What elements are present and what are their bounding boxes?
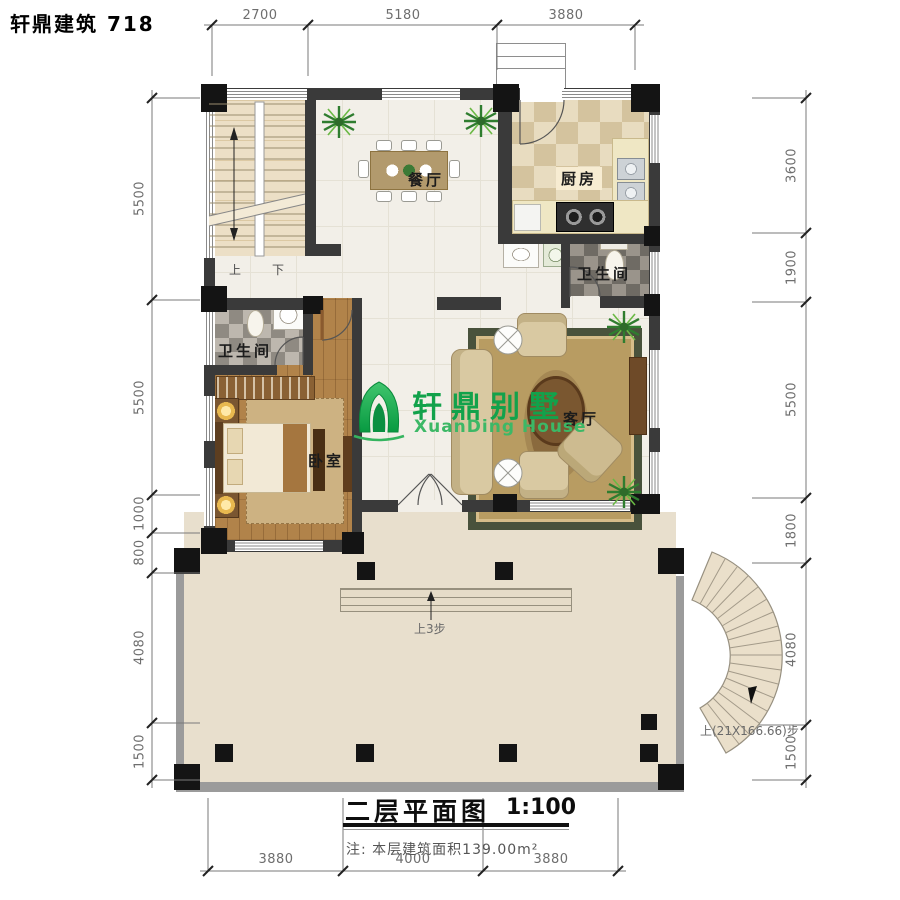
window [235, 541, 323, 551]
terrace-wall-bottom [176, 782, 684, 792]
dining-chair [401, 140, 417, 151]
column [342, 532, 364, 554]
column [631, 494, 660, 514]
column [644, 294, 660, 316]
terrace-column [499, 744, 517, 762]
fridge [514, 204, 541, 231]
terrace-wall-right [676, 576, 684, 782]
dim-left-1: 5500 [133, 167, 148, 231]
title-underline [343, 823, 569, 827]
window [227, 89, 307, 100]
room-label-dining: 餐厅 [408, 169, 444, 190]
dim-bottom-1: 3880 [244, 852, 308, 867]
dim-right-5: 4080 [785, 618, 800, 682]
dim-top-1: 2700 [228, 8, 292, 23]
toilet-icon [247, 310, 264, 337]
terrace-corner-column [174, 764, 200, 790]
dim-right-3: 5500 [785, 368, 800, 432]
pillow [227, 428, 243, 454]
dining-chair [426, 140, 442, 151]
column [631, 84, 660, 112]
wardrobe [216, 376, 315, 400]
column [493, 84, 519, 112]
nightstand-lamp [213, 398, 239, 424]
wall [305, 244, 341, 256]
window [204, 468, 215, 526]
stove-icon [556, 202, 614, 232]
terrace-column [641, 714, 657, 730]
wall [498, 234, 660, 244]
dining-chair [376, 140, 392, 151]
terrace-wall-left [176, 550, 184, 784]
door-opening [398, 500, 462, 512]
terrace-corner-column [658, 764, 684, 790]
terrace-steps [340, 588, 572, 612]
terrace-column [356, 744, 374, 762]
terrace-column [495, 562, 513, 580]
wall [561, 242, 570, 302]
terrace-corner-column [658, 548, 684, 574]
column [303, 296, 323, 314]
wall [215, 365, 277, 375]
dim-top-3: 3880 [534, 8, 598, 23]
plan-scale: 1:100 [506, 795, 576, 820]
terrace-column [215, 744, 233, 762]
armchair [517, 313, 567, 357]
dim-left-4: 800 [133, 521, 148, 585]
dim-left-5: 4080 [133, 616, 148, 680]
dining-chair [358, 160, 369, 178]
column [201, 528, 227, 554]
room-label-bedroom: 卧室 [308, 450, 344, 471]
column [201, 84, 227, 112]
dining-chair [449, 160, 460, 178]
room-label-kitchen: 厨房 [556, 167, 602, 190]
window [204, 112, 215, 258]
window [650, 252, 660, 298]
dining-chair [401, 191, 417, 202]
window [650, 350, 660, 428]
brand-title: 轩鼎建筑 718 [10, 8, 155, 37]
washbasin-icon [503, 241, 539, 268]
pillow [227, 459, 243, 485]
room-label-bathroom-left: 卫生间 [218, 340, 272, 361]
column [201, 286, 227, 312]
dining-chair [376, 191, 392, 202]
terrace-corner-column [174, 548, 200, 574]
floor-plan-sheet: 轩鼎建筑 718 餐厅 厨房 卫生间 卫生间 卧室 客厅 上 下 上3步 上(2… [0, 0, 900, 900]
kitchen-sink-icon [617, 158, 645, 180]
window [650, 452, 660, 496]
title-underline-thin [343, 829, 569, 830]
tv-cabinet [629, 357, 647, 435]
dim-top-2: 5180 [371, 8, 435, 23]
wall [303, 310, 313, 375]
wall [215, 298, 303, 310]
wall [498, 100, 512, 234]
dim-right-4: 1800 [785, 499, 800, 563]
wall [561, 296, 570, 308]
dim-left-2: 5500 [133, 366, 148, 430]
terrace-column [640, 744, 658, 762]
column [493, 494, 517, 512]
wall [305, 100, 316, 256]
window [530, 501, 630, 511]
window [562, 89, 633, 100]
window [204, 310, 215, 365]
nightstand-lamp [213, 492, 239, 518]
room-label-bathroom-top: 卫生间 [577, 263, 631, 284]
dim-left-6: 1500 [133, 720, 148, 784]
dim-right-1: 3600 [785, 134, 800, 198]
staircase-floor [209, 100, 305, 256]
terrace-floor [184, 512, 676, 784]
bed-blanket [283, 424, 307, 492]
terrace-steps-label: 上3步 [414, 620, 446, 637]
stair-up-label: 上 [229, 261, 241, 278]
door-opening [520, 86, 564, 102]
dining-chair [426, 191, 442, 202]
window [650, 115, 660, 163]
wall [352, 298, 362, 552]
window [382, 89, 460, 100]
stair-down-label: 下 [272, 261, 284, 278]
column [644, 226, 660, 246]
wall [437, 297, 501, 310]
area-note: 注: 本层建筑面积139.00m² [346, 839, 538, 859]
dim-right-6: 1500 [785, 721, 800, 785]
dim-right-2: 1900 [785, 236, 800, 300]
terrace-column [357, 562, 375, 580]
logo-name-en: XuanDing House [414, 417, 587, 437]
window [204, 396, 215, 441]
